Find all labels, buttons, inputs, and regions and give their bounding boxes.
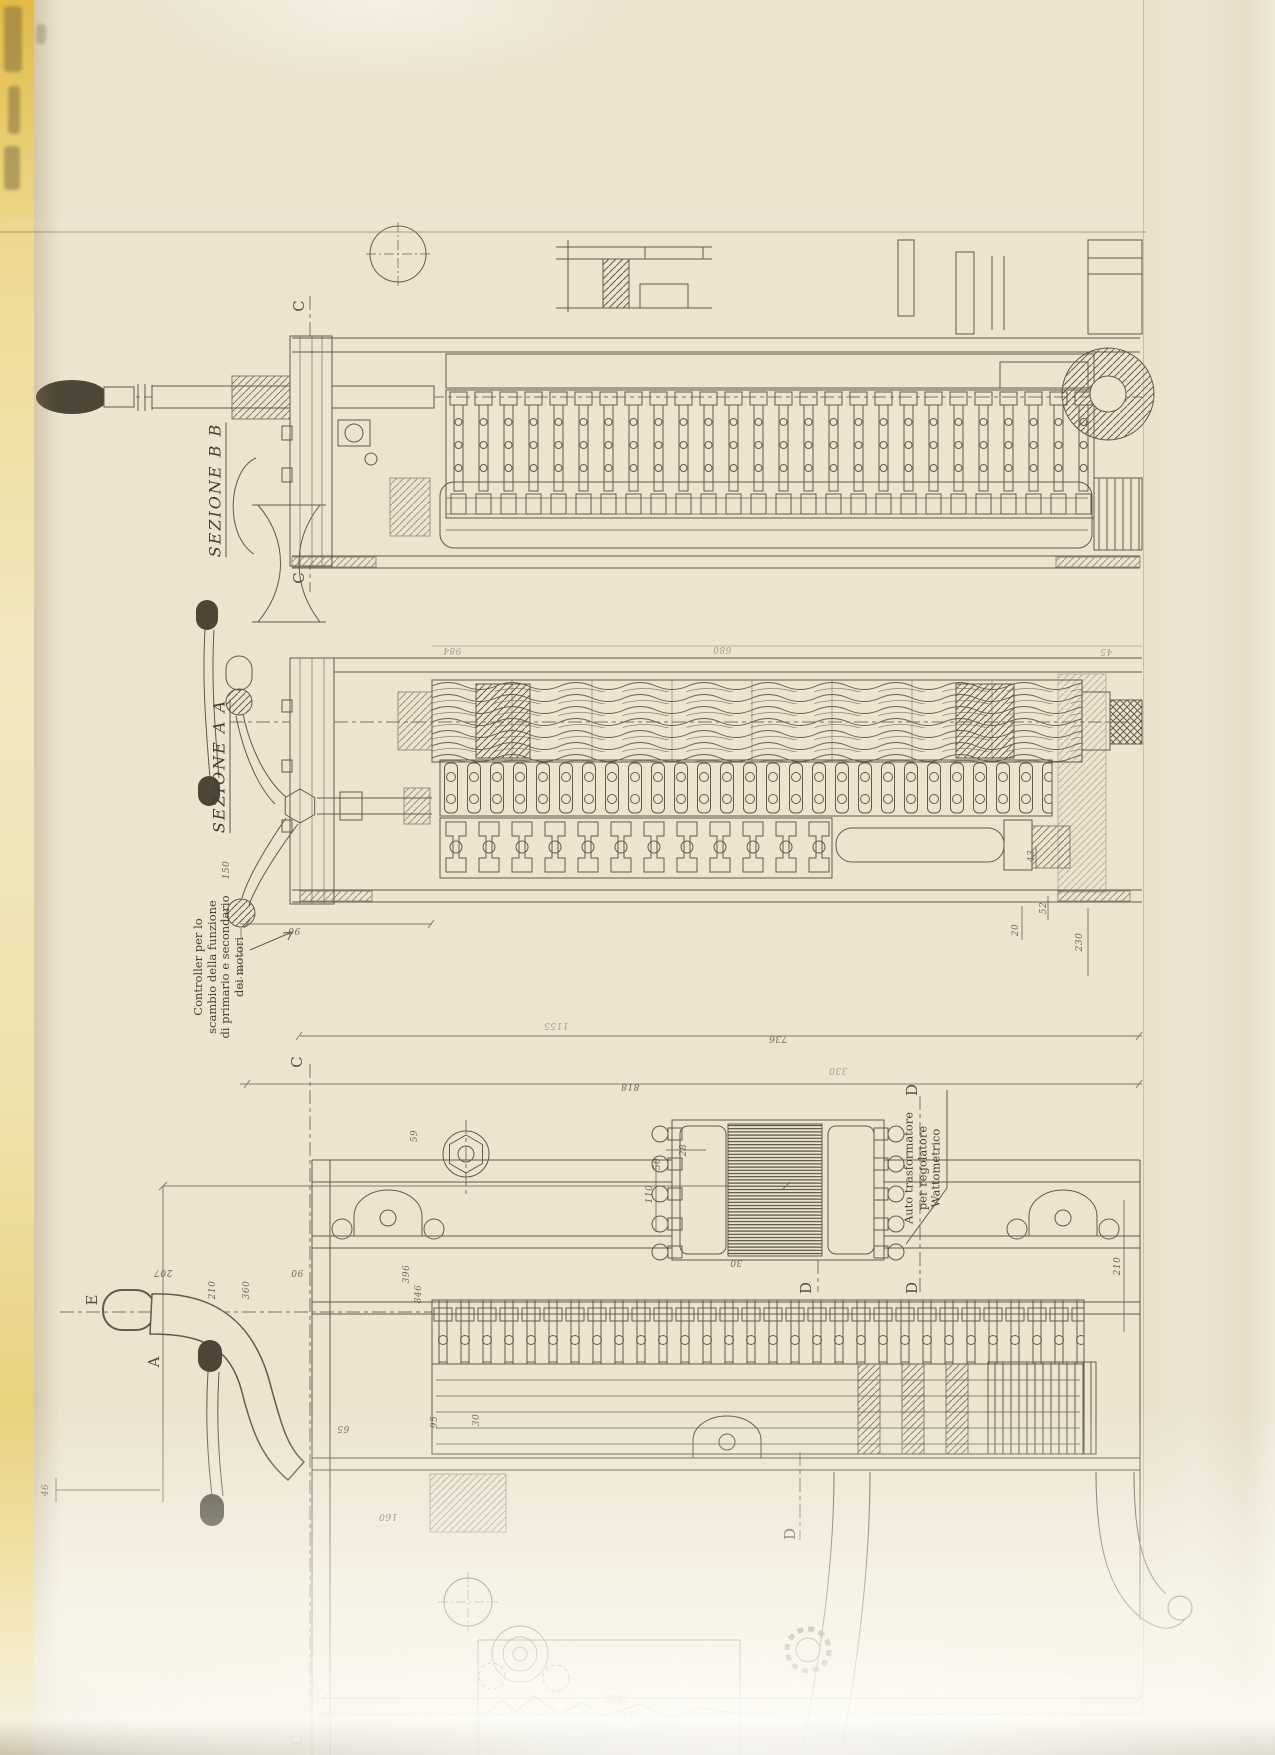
dimension-label: 818 xyxy=(621,1081,640,1091)
controller-note-line: dei motori xyxy=(233,857,247,1077)
dimension-label: 1020 xyxy=(604,1692,629,1702)
autotransformer-note-line: per regolatore xyxy=(916,1076,930,1260)
dimension-label: 45 xyxy=(1100,646,1112,656)
autotransformer-note-line: Wattometrico xyxy=(930,1076,944,1260)
section-letter: D xyxy=(903,1084,921,1096)
dimension-label: 90 xyxy=(291,1267,303,1277)
dimension-label: 30 xyxy=(472,1414,482,1426)
autotransformer-note: Auto trasformatore per regolatore Wattom… xyxy=(903,1076,944,1260)
section-letter: C xyxy=(288,1734,306,1745)
dimension-label: 52 xyxy=(1039,902,1049,914)
dimension-label: 20 xyxy=(1011,924,1021,936)
dimension-label: 736 xyxy=(769,1033,788,1043)
dimension-label: 95 xyxy=(430,1416,440,1428)
autotransformer-note-line: Auto trasformatore xyxy=(903,1076,917,1260)
section-letter: D xyxy=(797,1282,815,1294)
section-letter: D xyxy=(903,1282,921,1294)
dimension-label: 1155 xyxy=(544,1020,569,1030)
dimension-label: 43 xyxy=(1027,850,1037,862)
scanned-drawing-page: SEZIONE B B SEZIONE A A Controller per l… xyxy=(0,0,1275,1755)
dimension-label: 680 xyxy=(713,644,732,654)
dimension-label: 110 xyxy=(645,1185,655,1204)
dimension-label: 50 xyxy=(653,1158,663,1170)
dimension-label: 360 xyxy=(242,1281,252,1300)
dimension-label: 150 xyxy=(222,861,232,880)
dimension-label: 160 xyxy=(379,1511,398,1521)
dimension-label: 396 xyxy=(402,1265,412,1284)
section-letter: D xyxy=(781,1528,799,1540)
dimension-label: 1245 xyxy=(616,1708,641,1718)
section-letter: C xyxy=(290,572,308,583)
label-sezione-aa: SEZIONE A A xyxy=(210,699,231,833)
section-letter: A xyxy=(145,1357,163,1368)
section-letter: E xyxy=(83,1295,101,1306)
dimension-label: 230 xyxy=(1075,933,1085,952)
dimension-label: 46 xyxy=(41,1484,51,1496)
dimension-label: 846 xyxy=(414,1285,424,1304)
controller-note-line: scambio della funzione xyxy=(205,857,219,1077)
dimension-label: 28 xyxy=(679,1144,689,1156)
dimension-label: 984 xyxy=(443,645,462,655)
dimension-label: 59 xyxy=(410,1130,420,1142)
controller-note: Controller per lo scambio della funzione… xyxy=(192,857,246,1077)
label-sezione-bb: SEZIONE B B xyxy=(206,423,227,558)
dimension-label: 207 xyxy=(154,1267,173,1277)
controller-note-line: Controller per lo xyxy=(192,857,206,1077)
dimension-label: 96 xyxy=(288,925,300,935)
dimension-label: 65 xyxy=(337,1423,349,1433)
dimension-label: 210 xyxy=(1113,1257,1123,1276)
controller-note-line: di primario e secondario xyxy=(219,857,233,1077)
dimension-label: 30 xyxy=(730,1257,742,1267)
section-letter: C xyxy=(290,300,308,311)
annotation-layer: SEZIONE B B SEZIONE A A Controller per l… xyxy=(0,0,1275,1755)
dimension-label: 330 xyxy=(829,1065,848,1075)
dimension-label: 210 xyxy=(208,1281,218,1300)
section-letter: C xyxy=(288,1056,306,1067)
